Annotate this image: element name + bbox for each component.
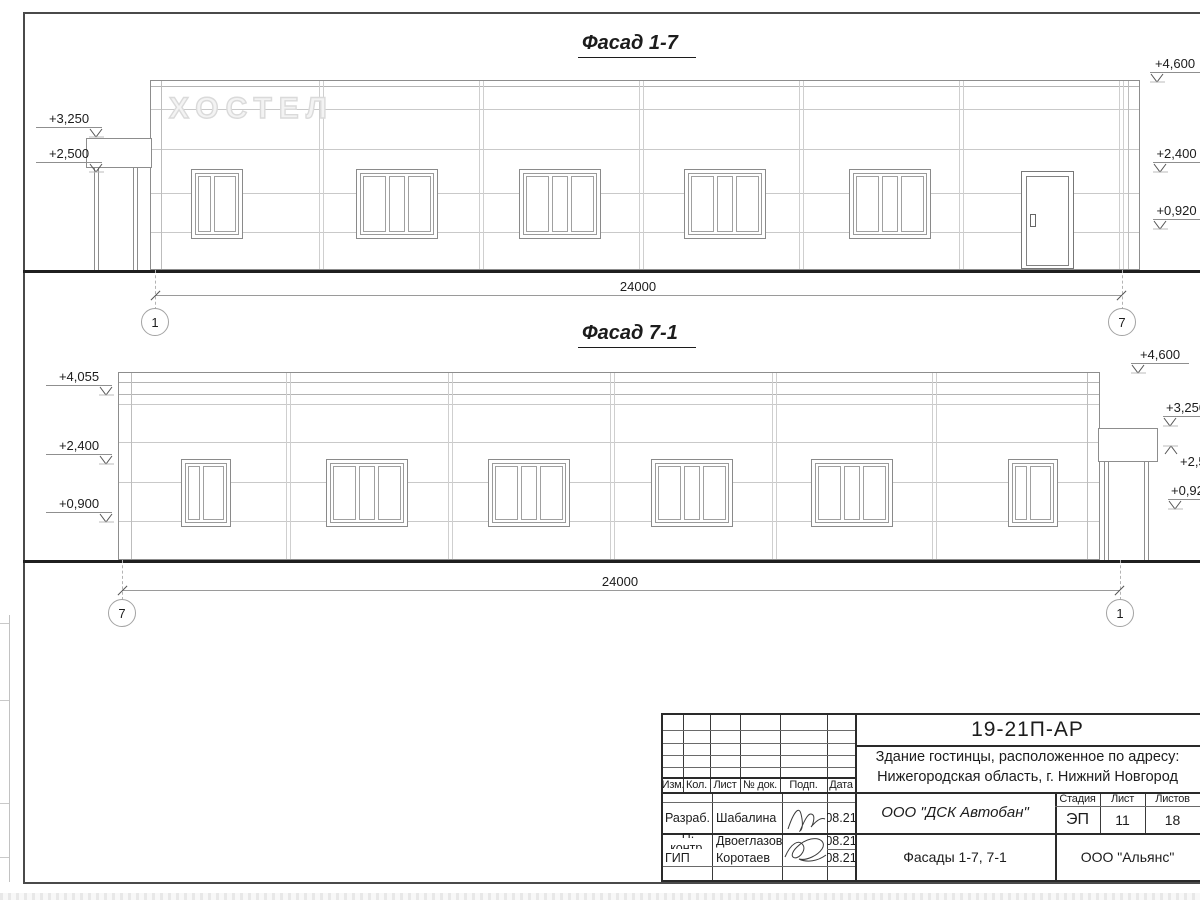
- tb-sheets-label: Листов: [1145, 792, 1200, 806]
- window-pane: [495, 466, 518, 520]
- dimension-label: 24000: [598, 279, 678, 294]
- door-handle-icon: [1030, 214, 1036, 227]
- window-3pane: [326, 459, 408, 527]
- elevation-arrow-icon: [1131, 364, 1146, 375]
- window-3pane: [684, 169, 766, 239]
- tb-line: [663, 730, 855, 731]
- window-2pane: [181, 459, 231, 527]
- tb-col-kol: Кол.: [683, 777, 710, 792]
- hostel-sign: ХОСТЕЛ: [169, 92, 334, 126]
- facade-7-building: [118, 372, 1100, 560]
- tb-line: [663, 866, 855, 867]
- tb-sheet-label: Лист: [1100, 792, 1145, 806]
- window-pane: [1030, 466, 1051, 520]
- facade-title: Фасад 1-7: [578, 32, 696, 58]
- tb-role: Разраб.: [665, 802, 711, 833]
- axis-marker: 1: [141, 308, 169, 336]
- tb-project-name: Здание гостинцы, расположенное по адресу…: [855, 747, 1200, 787]
- signature: [784, 804, 826, 832]
- elevation-arrow-icon: [1153, 220, 1168, 231]
- signature: [783, 834, 827, 865]
- tb-col-list: Лист: [710, 777, 740, 792]
- window-pane: [540, 466, 563, 520]
- tb-sheets-value: 18: [1145, 806, 1200, 833]
- window-3pane: [519, 169, 601, 239]
- tb-date: 08.21: [827, 833, 855, 849]
- window-3pane: [651, 459, 733, 527]
- panel-seam: [959, 81, 964, 269]
- panel-seam: [799, 81, 804, 269]
- axis-marker: 7: [108, 599, 136, 627]
- elevation-mark: +2,500: [36, 146, 102, 163]
- window-pane: [901, 176, 924, 232]
- elevation-arrow-icon: [99, 386, 114, 397]
- elevation-mark: +0,920: [1168, 483, 1200, 500]
- scan-artifact: [0, 893, 1200, 900]
- tb-stage-value: ЭП: [1055, 806, 1100, 833]
- elevation-arrow-icon: [1150, 73, 1165, 84]
- elevation-mark: +2,400: [46, 438, 112, 455]
- siding-line: [119, 442, 1099, 443]
- tb-line: [663, 743, 855, 744]
- siding-line: [151, 193, 1139, 194]
- siding-line: [119, 482, 1099, 483]
- window-pane: [203, 466, 224, 520]
- panel-seam: [286, 373, 291, 559]
- window-pane: [844, 466, 861, 520]
- tb-line: [663, 755, 855, 756]
- panel-seam: [1119, 81, 1124, 269]
- elevation-mark: +3,250: [36, 111, 102, 128]
- tb-line: [0, 857, 9, 858]
- axis-extension: [1120, 560, 1121, 600]
- tb-col-dok: № док.: [740, 777, 780, 792]
- elevation-arrow-icon: [1163, 444, 1178, 455]
- window-pane: [552, 176, 569, 232]
- tb-role: Н. контр.: [665, 833, 711, 849]
- tb-sheet-name: Фасады 1-7, 7-1: [855, 833, 1055, 880]
- tb-line: [0, 623, 9, 624]
- window-pane: [856, 176, 879, 232]
- elevation-arrow-icon: [1153, 163, 1168, 174]
- window-3pane: [811, 459, 893, 527]
- elevation-mark: +0,920: [1153, 203, 1200, 220]
- axis-extension: [122, 560, 123, 600]
- panel-seam: [932, 373, 937, 559]
- window-2pane: [1008, 459, 1058, 527]
- window-pane: [658, 466, 681, 520]
- elevation-arrow-icon: [99, 513, 114, 524]
- elevation-arrow-icon: [99, 455, 114, 466]
- dimension-label: 24000: [580, 574, 660, 589]
- parapet-line: [151, 86, 1139, 87]
- window-2pane: [191, 169, 243, 239]
- tb-name: Двоеглазов: [716, 833, 782, 849]
- ground-line: [23, 270, 1200, 273]
- axis-marker: 1: [1106, 599, 1134, 627]
- dimension-line: [155, 295, 1122, 296]
- canopy-post: [1144, 462, 1149, 560]
- facade-1-building: ХОСТЕЛ: [150, 80, 1140, 270]
- tb-name: Коротаев: [716, 849, 782, 866]
- elevation-mark: +4,055: [46, 369, 112, 386]
- axis-extension: [155, 270, 156, 310]
- tb-project-line2: Нижегородская область, г. Нижний Новгоро…: [855, 767, 1200, 787]
- canopy-slab: [1098, 428, 1158, 462]
- dimension-line: [122, 590, 1120, 591]
- elevation-mark: +4,600: [1131, 347, 1189, 364]
- canopy-post: [133, 168, 138, 270]
- cut-off-table: [0, 615, 10, 882]
- tb-project-line1: Здание гостинцы, расположенное по адресу…: [855, 747, 1200, 767]
- corner-trim: [161, 81, 162, 269]
- window-pane: [818, 466, 841, 520]
- window-pane: [359, 466, 376, 520]
- window-pane: [571, 176, 594, 232]
- elevation-mark: +3,250: [1163, 400, 1200, 417]
- parapet-line: [119, 382, 1099, 383]
- tb-col-data: Дата: [827, 777, 855, 792]
- siding-line: [119, 521, 1099, 522]
- tb-col-izm: Изм.: [663, 777, 683, 792]
- tb-date: 08.21: [827, 802, 855, 833]
- tb-col-podp: Подп.: [780, 777, 827, 792]
- window-pane: [717, 176, 734, 232]
- window-3pane: [488, 459, 570, 527]
- elevation-arrow-icon: [89, 163, 104, 174]
- elevation-mark: +4,600: [1150, 56, 1200, 73]
- tb-contractor: ООО "ДСК Автобан": [855, 792, 1055, 833]
- window-pane: [684, 466, 701, 520]
- corner-trim: [131, 373, 132, 559]
- panel-seam: [772, 373, 777, 559]
- window-pane: [389, 176, 406, 232]
- window-pane: [408, 176, 431, 232]
- window-pane: [691, 176, 714, 232]
- panel-seam: [610, 373, 615, 559]
- window-pane: [214, 176, 236, 232]
- tb-line: [0, 700, 9, 701]
- axis-extension: [1122, 270, 1123, 310]
- window-pane: [863, 466, 886, 520]
- tb-name: Шабалина: [716, 802, 782, 833]
- tb-sheet-value: 11: [1100, 806, 1145, 833]
- title-block: Изм. Кол. Лист № док. Подп. Дата Разраб.…: [661, 713, 1200, 882]
- tb-organization: ООО "Альянс": [1055, 833, 1200, 880]
- window-pane: [333, 466, 356, 520]
- elevation-mark: +2,500: [1177, 454, 1200, 470]
- elevation-arrow-icon: [1163, 417, 1178, 428]
- drawing-sheet: Фасад 1-7 ХОСТЕЛ: [0, 0, 1200, 900]
- tb-role: ГИП: [665, 849, 711, 866]
- parapet-line: [119, 394, 1099, 395]
- window-pane: [882, 176, 899, 232]
- tb-stage-label: Стадия: [1055, 792, 1100, 806]
- window-3pane: [356, 169, 438, 239]
- window-pane: [1015, 466, 1027, 520]
- canopy-post: [1104, 462, 1109, 560]
- elevation-arrow-icon: [89, 128, 104, 139]
- corner-trim: [1087, 373, 1088, 559]
- panel-seam: [479, 81, 484, 269]
- elevation-arrow-icon: [1168, 500, 1183, 511]
- corner-trim: [1128, 81, 1129, 269]
- window-pane: [188, 466, 200, 520]
- panel-seam: [448, 373, 453, 559]
- window-3pane: [849, 169, 931, 239]
- canopy-post: [94, 168, 99, 270]
- elevation-mark: +0,900: [46, 496, 112, 513]
- entrance-door: [1021, 171, 1074, 269]
- siding-line: [119, 404, 1099, 405]
- elevation-mark: +2,400: [1153, 146, 1200, 163]
- ground-line: [23, 560, 1200, 563]
- tb-line: [663, 767, 855, 768]
- window-pane: [526, 176, 549, 232]
- window-pane: [198, 176, 211, 232]
- window-pane: [521, 466, 538, 520]
- facade-title: Фасад 7-1: [578, 322, 696, 348]
- axis-marker: 7: [1108, 308, 1136, 336]
- tb-date: 08.21: [827, 849, 855, 866]
- window-pane: [703, 466, 726, 520]
- siding-line: [151, 149, 1139, 150]
- window-pane: [736, 176, 759, 232]
- tb-doc-number: 19-21П-АР: [855, 715, 1200, 745]
- siding-line: [151, 232, 1139, 233]
- window-pane: [363, 176, 386, 232]
- window-pane: [378, 466, 401, 520]
- tb-line: [0, 803, 9, 804]
- panel-seam: [639, 81, 644, 269]
